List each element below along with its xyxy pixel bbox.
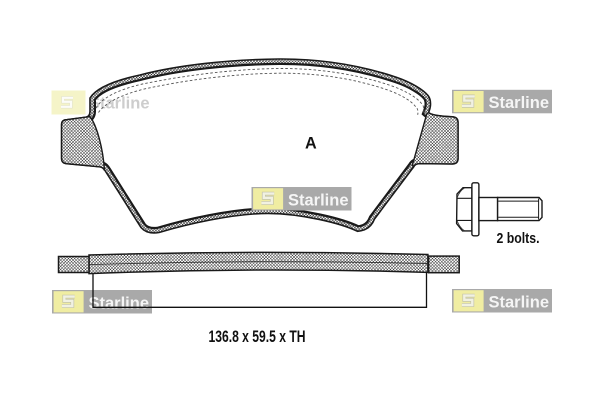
svg-text:A: A	[305, 134, 317, 152]
svg-text:2 bolts.: 2 bolts.	[497, 231, 540, 247]
svg-text:136.8 x 59.5 x TH: 136.8 x 59.5 x TH	[209, 328, 306, 346]
